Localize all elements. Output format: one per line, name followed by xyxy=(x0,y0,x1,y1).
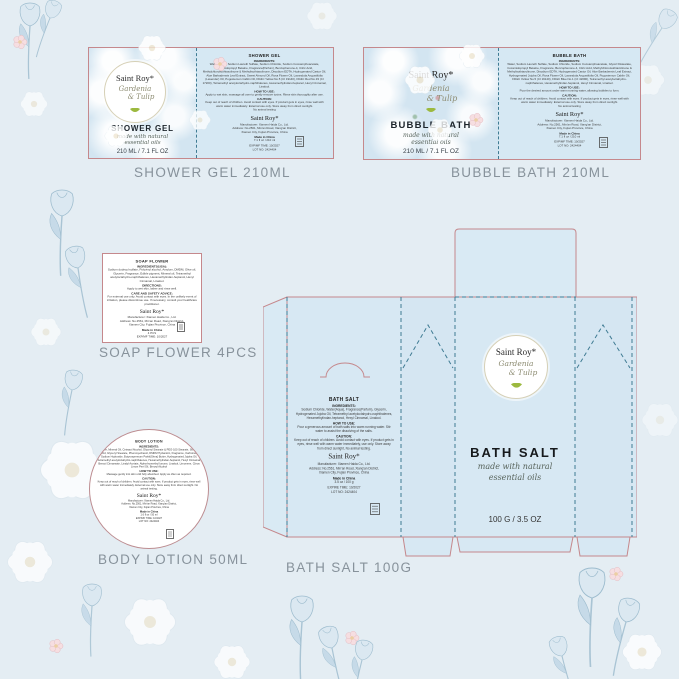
how-text: Apply to wet skin, massage all over to g… xyxy=(202,93,327,97)
shower-gel-label: Saint Roy* Gardenia & Tulip SHOWER GEL m… xyxy=(88,47,334,159)
product-name: SHOWER GEL xyxy=(89,124,196,133)
thumb-notch xyxy=(320,363,370,377)
certification-icon xyxy=(166,529,174,539)
no-testing-text: No animal testing xyxy=(202,109,327,113)
back-title: SHOWER GEL xyxy=(202,53,327,58)
certification-icon xyxy=(370,503,380,515)
soap-flower-label: SOAP FLOWER INGREDIENTS(USA): Sodium dod… xyxy=(102,253,202,343)
scent-name: & Tulip xyxy=(499,368,547,377)
product-tagline: made with natural xyxy=(455,462,575,471)
ingredients-text: Water, Mineral Oil, Cetearyl Alcohol, Gl… xyxy=(97,449,201,470)
bubble-bath-back-panel: BUBBLE BATH INGREDIENTS: Water, Sodium L… xyxy=(499,48,640,159)
brand-name: Saint Roy* xyxy=(364,70,498,81)
net-text: 7.1 fl oz / 210 ml xyxy=(507,135,632,139)
scent-name: & Tulip xyxy=(117,93,165,101)
exp-text: EXP/MF TIME: 10/2027 xyxy=(106,336,198,338)
address-text: Xiamen City, Fujian Province, China xyxy=(507,127,632,131)
ingredients-text: Sodium dodecyl sulfate, Polyvinyl alcoho… xyxy=(106,269,198,284)
brand-signature: Saint Roy* xyxy=(294,453,394,461)
packaging-design-sheet: Saint Roy* Gardenia & Tulip SHOWER GEL m… xyxy=(0,0,679,679)
product-name: BUBBLE BATH xyxy=(364,120,498,131)
body-lotion-label: BODY LOTION INGREDIENTS: Water, Mineral … xyxy=(89,429,209,549)
product-tagline: made with natural xyxy=(364,132,498,139)
caption-body-lotion: BODY LOTION 50ML xyxy=(98,552,248,567)
leaf-icon xyxy=(130,108,140,114)
directions-text: Apply to wet skin, lather and rinse well… xyxy=(106,288,198,292)
brand-signature: Saint Roy* xyxy=(97,492,201,498)
back-title: BODY LOTION xyxy=(97,440,201,444)
product-tagline: essential oils xyxy=(455,473,575,482)
back-title: BUBBLE BATH xyxy=(507,53,632,58)
shower-gel-back-text: SHOWER GEL INGREDIENTS: Water(Aqua), Sod… xyxy=(202,53,327,156)
lot-text: LOT NO: 2424404 xyxy=(97,520,201,523)
caution-text: Keep out of reach of children. Avoid con… xyxy=(507,97,632,105)
ingredients-text: Water, Sodium Laureth Sulfate, Sodium Ch… xyxy=(507,63,632,86)
scent-name: Gardenia xyxy=(485,359,547,368)
how-text: Pour the desired amount under warm runni… xyxy=(507,90,632,94)
net-text: 3.5 oz / 100 g xyxy=(294,480,394,484)
caption-bath-salt: BATH SALT 100G xyxy=(286,560,412,575)
bubble-bath-back-text: BUBBLE BATH INGREDIENTS: Water, Sodium L… xyxy=(507,53,632,156)
bath-salt-dieline: BATH SALT INGREDIENTS: Sodium Chloride, … xyxy=(263,227,637,559)
shower-gel-front-panel: Saint Roy* Gardenia & Tulip SHOWER GEL m… xyxy=(89,48,196,158)
caption-shower-gel: SHOWER GEL 210ML xyxy=(134,165,291,180)
address-text: Xiamen City, Fujian Province, China xyxy=(202,131,327,135)
brand-signature: Saint Roy* xyxy=(202,114,327,122)
ingredients-text: Water(Aqua), Sodium Laureth Sulfate, Sod… xyxy=(202,63,327,89)
bubble-bath-front-panel: Saint Roy* Gardenia & Tulip BUBBLE BATH … xyxy=(364,48,498,159)
caption-bubble-bath: BUBBLE BATH 210ML xyxy=(451,165,610,180)
brand-badge: Saint Roy* Gardenia & Tulip xyxy=(104,61,166,123)
caution-text: Keep out of reach of children. Avoid con… xyxy=(202,101,327,109)
lot-text: LOT NO: 2424404 xyxy=(202,148,327,152)
address-text: Xiamen City, Fujian Province, China xyxy=(294,471,394,475)
how-text: Pour a generous amount of bath salts int… xyxy=(294,425,394,434)
caption-soap-flower: SOAP FLOWER 4PCS xyxy=(99,345,258,360)
brand-name: Saint Roy* xyxy=(485,347,547,357)
ingredients-text: Sodium Chloride, Water(Aqua), Fragrance(… xyxy=(294,408,394,421)
certification-icon xyxy=(599,137,608,148)
caution-text: Keep out of reach of children. Avoid con… xyxy=(294,438,394,451)
lot-text: LOT NO: 2424404 xyxy=(294,490,394,494)
body-lotion-text: BODY LOTION INGREDIENTS: Water, Mineral … xyxy=(97,440,201,540)
product-name: BATH SALT xyxy=(455,445,575,460)
back-title: BATH SALT xyxy=(294,397,394,403)
care-text: For external use only. Avoid contact wit… xyxy=(106,295,198,306)
net-size: 210 ML / 7.1 FL OZ xyxy=(364,148,498,155)
scent-name: Gardenia xyxy=(364,84,498,93)
certification-icon xyxy=(177,322,185,332)
scent-name: & Tulip xyxy=(364,94,498,103)
leaf-icon xyxy=(426,108,436,114)
bubble-bath-label: Saint Roy* Gardenia & Tulip BUBBLE BATH … xyxy=(363,47,641,160)
brand-signature: Saint Roy* xyxy=(507,111,632,119)
how-text: Massage gently into skin until fully abs… xyxy=(97,473,201,476)
address-text: Xiamen City, Fujian Province, China xyxy=(97,506,201,509)
product-tagline: essential oils xyxy=(364,139,498,146)
lot-text: LOT NO: 2424404 xyxy=(507,144,632,148)
certification-icon xyxy=(295,136,304,147)
net-size: 100 G / 3.5 OZ xyxy=(455,515,575,524)
net-text: 7.1 fl oz / 210 ml xyxy=(202,139,327,143)
brand-signature: Saint Roy* xyxy=(106,309,198,315)
bath-salt-back-text: BATH SALT INGREDIENTS: Sodium Chloride, … xyxy=(294,397,394,537)
net-size: 210 ML / 7.1 FL OZ xyxy=(89,149,196,155)
leaf-icon xyxy=(511,383,522,390)
no-testing-text: No animal testing xyxy=(507,105,632,109)
brand-badge: Saint Roy* Gardenia & Tulip xyxy=(484,335,548,399)
brand-name: Saint Roy* xyxy=(105,73,165,83)
shower-gel-back-panel: SHOWER GEL INGREDIENTS: Water(Aqua), Sod… xyxy=(197,48,333,158)
scent-name: Gardenia xyxy=(105,85,165,93)
back-title: SOAP FLOWER xyxy=(106,259,198,264)
product-tagline: essential oils xyxy=(89,140,196,146)
caution-text: Keep out of reach of children. Avoid con… xyxy=(97,481,201,491)
